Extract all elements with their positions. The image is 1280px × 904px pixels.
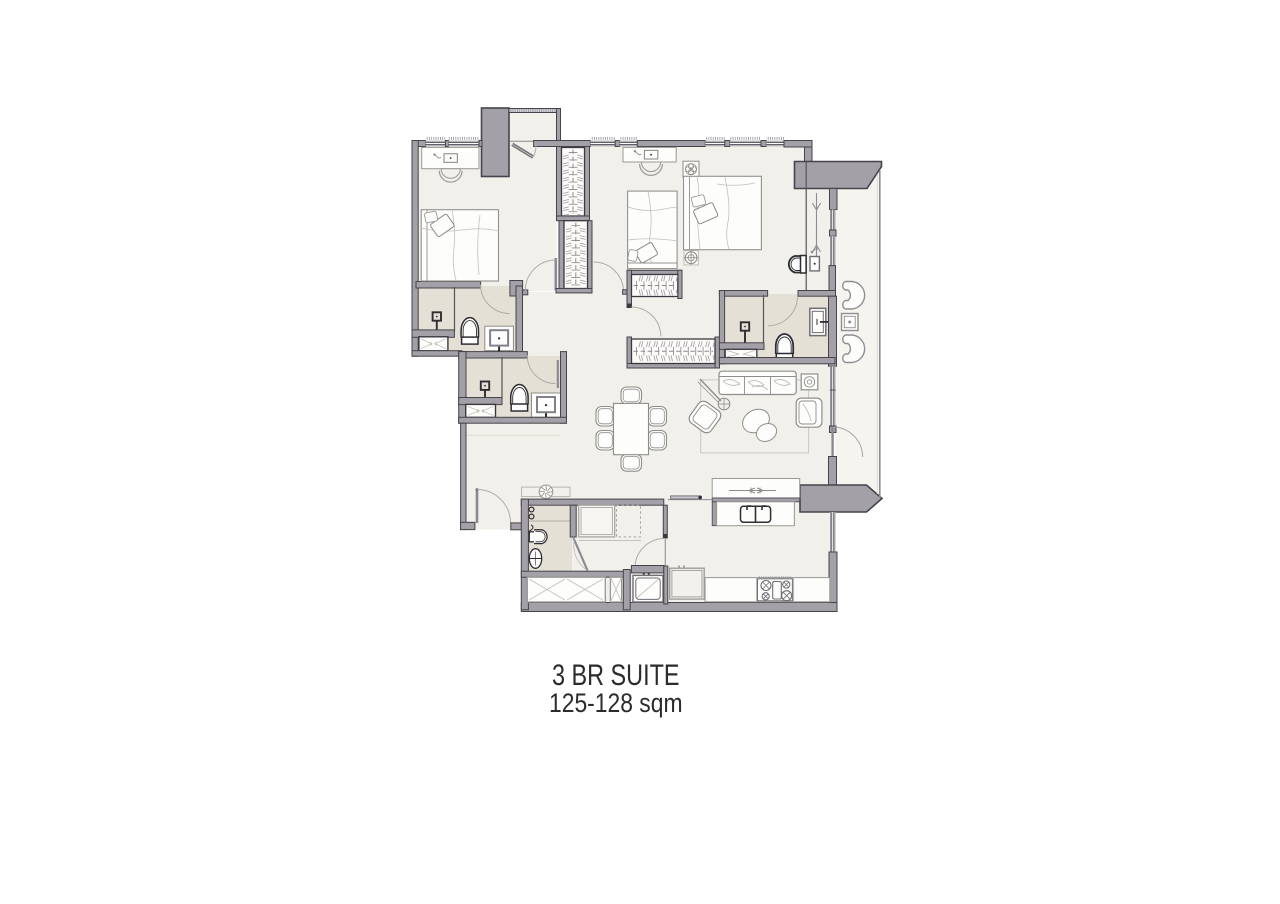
svg-text:125-128 sqm: 125-128 sqm — [549, 688, 683, 718]
